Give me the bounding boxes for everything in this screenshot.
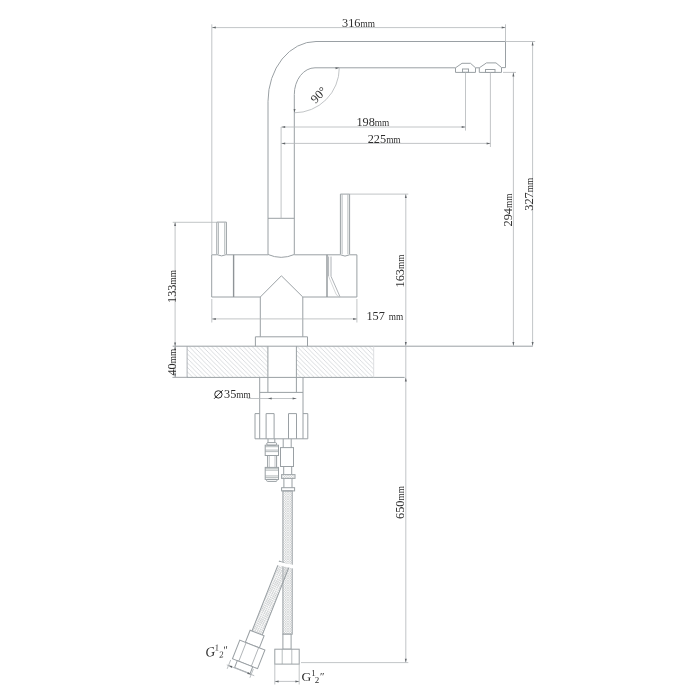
svg-text:225mm: 225mm — [368, 132, 402, 146]
svg-text:133mm: 133mm — [165, 269, 179, 303]
svg-text:35mm: 35mm — [224, 387, 252, 401]
svg-text:327mm: 327mm — [522, 177, 536, 211]
svg-text:163mm: 163mm — [393, 254, 407, 288]
svg-text:294mm: 294mm — [501, 193, 515, 227]
svg-text:40mm: 40mm — [165, 348, 179, 376]
svg-text:198mm: 198mm — [356, 115, 390, 129]
svg-text:650mm: 650mm — [393, 485, 407, 519]
svg-text:316mm: 316mm — [342, 16, 376, 30]
